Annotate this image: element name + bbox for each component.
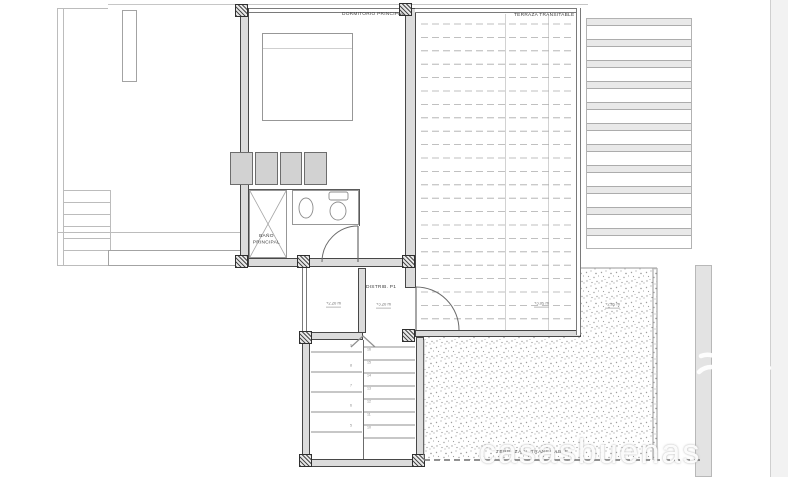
- toilet-bowl: [330, 202, 346, 220]
- watermark-text: casasbuenas: [479, 433, 701, 472]
- sink: [299, 198, 313, 218]
- level-marker-cubierta: +2.85 m: [605, 303, 620, 308]
- step-number: 6: [350, 404, 352, 408]
- step-number: 7: [350, 384, 352, 388]
- palm-tree-icon: [699, 351, 769, 450]
- step-number: 5: [350, 424, 352, 428]
- terrace-door-arc: [416, 287, 459, 330]
- step-number: 11: [367, 413, 371, 417]
- step-number: 9: [350, 344, 352, 348]
- step-number: 15: [367, 361, 371, 365]
- toilet-tank: [329, 192, 348, 200]
- level-marker-terraza: +3.05 m: [534, 302, 549, 307]
- gravel-roof-area: [424, 268, 657, 460]
- step-number: 8: [350, 364, 352, 368]
- step-number: 10: [367, 426, 371, 430]
- step-number: 16: [367, 348, 371, 352]
- level-marker-distribuidor: +3.20 m: [376, 303, 391, 308]
- step-number: 13: [367, 387, 371, 391]
- plan-linework: [0, 0, 788, 477]
- room-label-dormitorio: DORMITORIO PRINCIPAL: [342, 11, 404, 17]
- level-marker-landing: +2.20 m: [326, 302, 341, 307]
- room-label-terraza: TERRAZA TRANSITABLE: [514, 12, 574, 18]
- floor-plan: DORMITORIO PRINCIPAL TERRAZA TRANSITABLE…: [0, 0, 788, 477]
- room-label-bano: BAÑO PRINCIPAL: [252, 233, 281, 246]
- room-label-distribuidor: DISTRIB. P1: [366, 284, 396, 290]
- stairs-up-arrow-icon: [351, 336, 375, 347]
- bathroom-door-arc: [322, 226, 358, 262]
- step-number: 14: [367, 374, 371, 378]
- step-number: 12: [367, 400, 371, 404]
